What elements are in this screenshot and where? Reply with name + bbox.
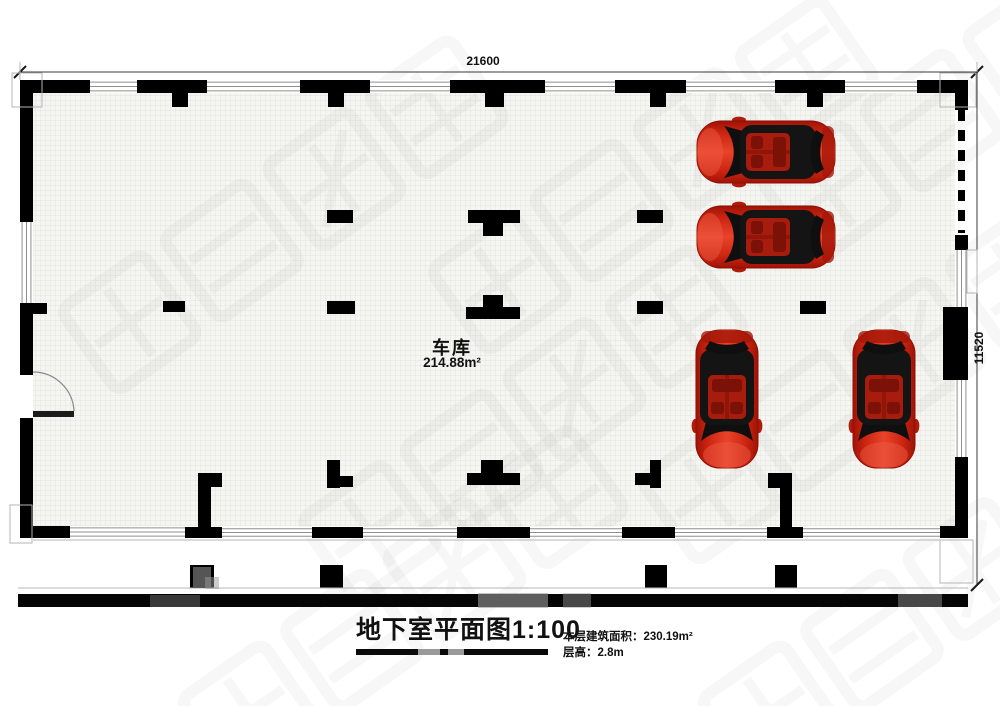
window <box>70 526 185 538</box>
structural-column <box>635 473 661 485</box>
window <box>686 80 775 93</box>
structural-column <box>637 210 663 223</box>
wall-segment <box>615 80 686 93</box>
wall-segment <box>450 80 545 93</box>
structural-column <box>327 476 353 487</box>
parked-car <box>692 330 763 468</box>
underline-smudge <box>448 649 464 655</box>
smudge <box>563 593 591 608</box>
wall-segment <box>622 527 675 538</box>
window <box>803 527 940 538</box>
structural-column <box>33 303 47 314</box>
title-underline <box>356 649 548 655</box>
structural-column <box>807 93 823 107</box>
structural-column <box>481 460 503 474</box>
window <box>845 80 917 93</box>
wall-segment <box>300 80 370 93</box>
wall-segment <box>20 526 70 538</box>
structural-column <box>650 93 666 107</box>
door-opening <box>20 375 33 418</box>
structural-column <box>327 210 353 223</box>
dimension-top-label: 21600 <box>433 54 533 68</box>
window <box>675 527 767 538</box>
wall-segment <box>940 526 968 538</box>
window <box>955 250 968 307</box>
wall-segment <box>20 418 33 538</box>
exterior-post <box>645 565 667 588</box>
floor-height-info: 层高：2.8m <box>563 644 624 660</box>
parked-car <box>697 117 835 188</box>
window <box>90 80 137 93</box>
window <box>530 527 622 538</box>
exterior-post <box>775 565 797 588</box>
floor-area-info: 本层建筑面积：230.19m² <box>563 628 693 644</box>
floor-plan-page: 21600 11520 车库 214.88m² 地下室平面图1:100 本层建筑… <box>0 0 1000 706</box>
window <box>222 527 312 538</box>
parked-car <box>849 330 920 468</box>
structural-column <box>163 301 185 312</box>
smudge <box>205 577 219 589</box>
smudge <box>478 593 548 608</box>
smudge <box>898 594 942 607</box>
structural-column <box>468 210 520 223</box>
structural-column <box>780 488 792 528</box>
structural-column <box>483 223 503 236</box>
wall-segment <box>955 457 968 538</box>
wall-segment <box>20 80 33 222</box>
window <box>207 80 300 93</box>
wall-segment <box>767 527 803 538</box>
window <box>20 222 33 303</box>
structural-column <box>637 301 663 314</box>
smudge <box>150 595 200 607</box>
structural-column <box>800 301 826 314</box>
dimension-right-label: 11520 <box>972 319 986 377</box>
plan-title: 地下室平面图1:100 <box>356 610 581 646</box>
window <box>363 527 457 538</box>
wall-segment <box>137 80 207 93</box>
exterior-post <box>320 565 343 588</box>
room-area-label: 214.88m² <box>392 355 512 370</box>
structural-column <box>466 307 520 319</box>
wall-segment <box>943 307 968 380</box>
wall-segment <box>185 527 222 538</box>
structural-column <box>328 93 344 107</box>
parked-car <box>697 202 835 273</box>
underline-smudge <box>418 649 440 655</box>
wall-segment <box>20 303 33 375</box>
structural-column <box>198 487 211 527</box>
structural-column <box>483 295 503 308</box>
window <box>370 80 450 93</box>
door-leaf <box>33 411 74 417</box>
structural-column <box>327 301 355 314</box>
wall-segment <box>457 527 530 538</box>
structural-column <box>172 93 188 107</box>
structural-column <box>768 473 792 488</box>
structural-column <box>485 93 504 107</box>
window <box>955 380 968 457</box>
window <box>545 80 615 93</box>
structural-column <box>198 473 222 487</box>
structural-column <box>955 93 968 108</box>
structural-column <box>467 473 520 485</box>
wall-segment <box>775 80 845 93</box>
wall-segment <box>955 235 968 250</box>
wall-segment <box>312 527 363 538</box>
